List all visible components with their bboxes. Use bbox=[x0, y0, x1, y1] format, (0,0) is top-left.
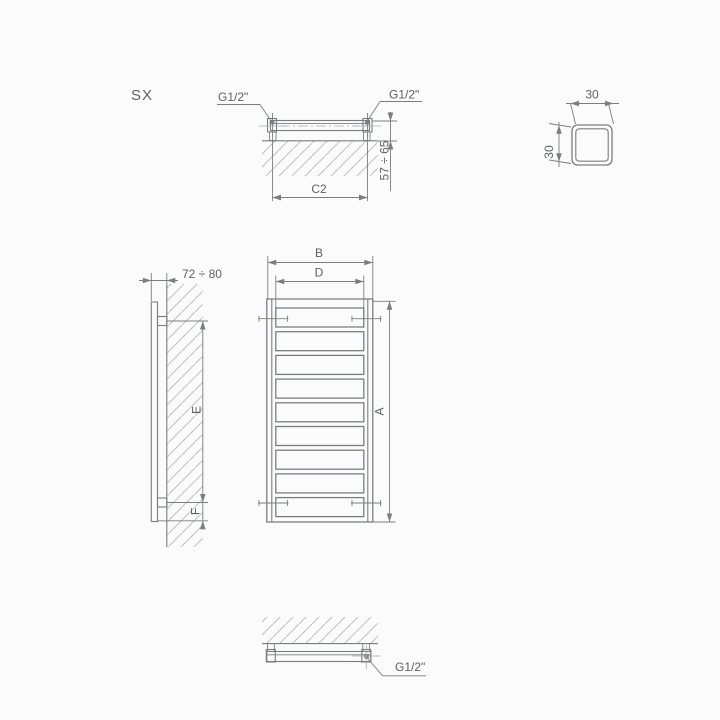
radiator-bar-top bbox=[271, 121, 370, 131]
bracket-marks bbox=[258, 316, 382, 506]
right-connector bbox=[352, 646, 381, 670]
radiator-rung bbox=[276, 474, 364, 493]
tube-profile-view: 30 30 bbox=[542, 88, 619, 168]
dim-tube-height: 30 bbox=[542, 122, 571, 167]
radiator-rungs bbox=[276, 308, 364, 517]
radiator-rung bbox=[276, 427, 364, 446]
radiator-rung bbox=[276, 379, 364, 398]
radiator-rung bbox=[276, 498, 364, 517]
dim-label-tube-width: 30 bbox=[585, 88, 599, 102]
dim-label-a: A bbox=[373, 407, 387, 415]
connection-label: G1/2" bbox=[218, 90, 248, 104]
callout-g12-left: G1/2" bbox=[217, 90, 272, 122]
dim-label-e: E bbox=[190, 406, 204, 414]
top-bracket bbox=[158, 317, 167, 326]
radiator-panel-side bbox=[151, 302, 157, 522]
dim-label-mount-depth: 57 ÷ 65 bbox=[378, 140, 392, 180]
dim-label-f: F bbox=[189, 508, 203, 515]
radiator-rung bbox=[276, 450, 364, 469]
dim-label-tube-height: 30 bbox=[542, 145, 556, 159]
radiator-bar-bottom bbox=[267, 652, 371, 662]
radiator-rung bbox=[276, 332, 364, 351]
right-wall-bracket bbox=[364, 132, 371, 141]
radiator-frame bbox=[267, 299, 373, 522]
dim-d: D bbox=[276, 266, 364, 322]
front-view: B D bbox=[258, 246, 396, 522]
tube-inner bbox=[576, 129, 608, 161]
wall-hatch bbox=[262, 617, 378, 643]
left-wall-bracket bbox=[268, 644, 275, 652]
technical-drawing-canvas: SX G1/2" G1/2 bbox=[0, 0, 720, 720]
radiator-dimension-drawing: SX G1/2" G1/2 bbox=[0, 0, 720, 720]
radiator-rung bbox=[276, 403, 364, 422]
dim-label-b: B bbox=[315, 246, 323, 260]
dim-label-wall-clearance: 72 ÷ 80 bbox=[182, 267, 222, 281]
dim-label-d: D bbox=[315, 266, 324, 280]
radiator-rung bbox=[276, 355, 364, 374]
top-view: SX G1/2" G1/2 bbox=[131, 87, 422, 201]
dim-tube-width: 30 bbox=[566, 88, 619, 125]
radiator-rung bbox=[276, 308, 364, 327]
bottom-bracket bbox=[158, 498, 167, 507]
callout-g12-bottom: G1/2" bbox=[367, 658, 426, 676]
callout-g12-right: G1/2" bbox=[368, 88, 422, 121]
dim-label-c2: C2 bbox=[311, 182, 327, 196]
wall-hatch bbox=[167, 284, 203, 547]
dim-a: A bbox=[373, 301, 396, 522]
connection-label: G1/2" bbox=[389, 88, 419, 102]
wall-hatch bbox=[262, 141, 378, 176]
variant-label: SX bbox=[131, 87, 153, 104]
tube-outer bbox=[572, 125, 612, 165]
connection-label: G1/2" bbox=[395, 660, 425, 674]
side-view: 72 ÷ 80 E F bbox=[139, 267, 222, 547]
bottom-view: G1/2" bbox=[262, 617, 426, 676]
